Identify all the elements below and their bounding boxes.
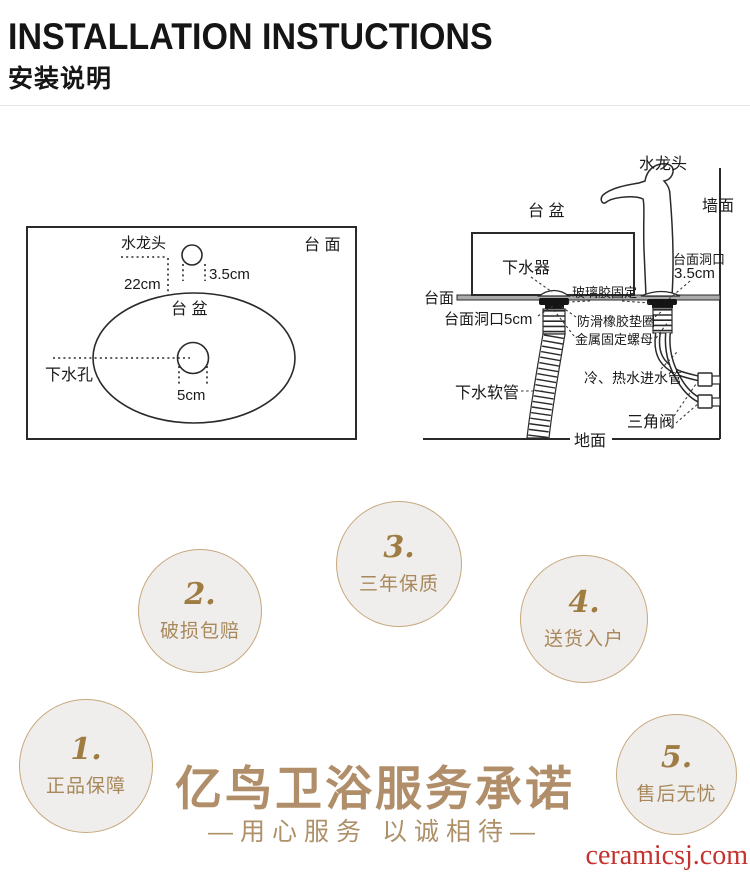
installation-instructions-page: INSTALLATION INSTUCTIONS 安装说明 台 面 水龙头 3.… — [0, 0, 750, 878]
basin-label: 台 盆 — [171, 300, 207, 318]
drain-hole-label: 台面洞口5cm — [444, 311, 532, 328]
drain-fitting-label: 下水器 — [502, 259, 550, 277]
badge-label: 三年保质 — [359, 569, 439, 596]
countertop-label: 台 面 — [304, 236, 340, 254]
faucet-hole-label: 水龙头 — [121, 235, 166, 252]
drain-hole-label: 下水孔 — [45, 366, 93, 384]
nut-label: 金属固定螺母 — [575, 332, 653, 347]
badge-three-year-warranty: 3. 三年保质 — [336, 501, 462, 627]
drain-nut — [545, 305, 564, 309]
badge-label: 送货入户 — [544, 624, 624, 651]
floor-label: 地面 — [574, 432, 606, 450]
faucet-nut — [652, 304, 673, 308]
faucet-hole-label-line2: 3.5cm — [674, 265, 715, 282]
badge-number: 2. — [184, 580, 215, 610]
drain-hose-label: 下水软管 — [455, 384, 519, 402]
top-view-diagram: 台 面 水龙头 3.5cm 22cm 台 盆 下水孔 5cm — [27, 227, 356, 439]
badge-home-delivery: 4. 送货入户 — [520, 555, 648, 683]
washer-label: 防滑橡胶垫圈 — [577, 314, 655, 329]
installation-diagrams: 台 面 水龙头 3.5cm 22cm 台 盆 下水孔 5cm — [0, 130, 750, 470]
service-promise-title: 亿鸟卫浴服务承诺 — [0, 750, 750, 819]
faucet-hole — [182, 245, 202, 265]
drain-hole — [178, 343, 209, 374]
faucet-label: 水龙头 — [639, 155, 687, 173]
badge-damage-compensation: 2. 破损包赔 — [138, 549, 262, 673]
page-subtitle: 安装说明 — [8, 59, 112, 95]
valve-label: 三角阀 — [627, 413, 675, 431]
supply-hoses — [657, 333, 704, 402]
drain-hole-size: 5cm — [177, 387, 205, 404]
basin-label: 台 盆 — [528, 202, 564, 220]
page-title: INSTALLATION INSTUCTIONS — [8, 16, 493, 58]
watermark-text: ceramicsj.com — [586, 840, 748, 872]
faucet-hole-size: 3.5cm — [209, 266, 250, 283]
badge-number: 3. — [383, 533, 414, 563]
wall-label: 墙面 — [702, 197, 734, 215]
badge-number: 4. — [568, 588, 599, 618]
badge-label: 破损包赔 — [160, 616, 240, 643]
side-view-diagram: 水龙头 墙面 台 盆 下水器 玻璃胶固定 台面 台面洞口 3.5cm 台面洞口5… — [423, 155, 734, 450]
countertop-label: 台面 — [424, 290, 454, 307]
supply-pipe-label: 冷、热水进水管 — [584, 370, 682, 386]
angle-valves — [698, 373, 720, 408]
drain-flange — [539, 298, 569, 305]
glue-label: 玻璃胶固定 — [572, 285, 637, 300]
header-divider — [0, 105, 750, 106]
faucet-distance: 22cm — [124, 276, 161, 293]
